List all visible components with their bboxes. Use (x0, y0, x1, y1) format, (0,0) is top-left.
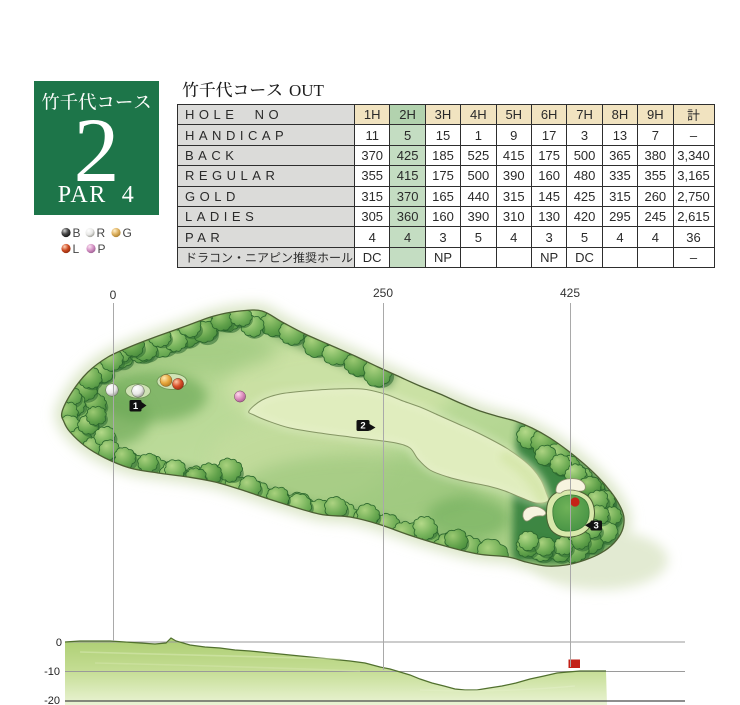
svg-text:-10: -10 (44, 666, 60, 678)
svg-text:0: 0 (110, 288, 117, 302)
svg-text:L: L (73, 242, 80, 256)
svg-text:0: 0 (56, 637, 62, 649)
svg-text:R: R (97, 226, 106, 240)
svg-text:3: 3 (594, 520, 599, 531)
svg-text:250: 250 (373, 286, 393, 300)
svg-text:G: G (123, 226, 132, 240)
svg-text:2: 2 (360, 421, 365, 432)
svg-text:1: 1 (133, 401, 139, 412)
svg-text:P: P (98, 242, 106, 256)
svg-text:425: 425 (560, 286, 580, 300)
svg-text:-20: -20 (44, 695, 60, 705)
svg-text:B: B (73, 226, 81, 240)
